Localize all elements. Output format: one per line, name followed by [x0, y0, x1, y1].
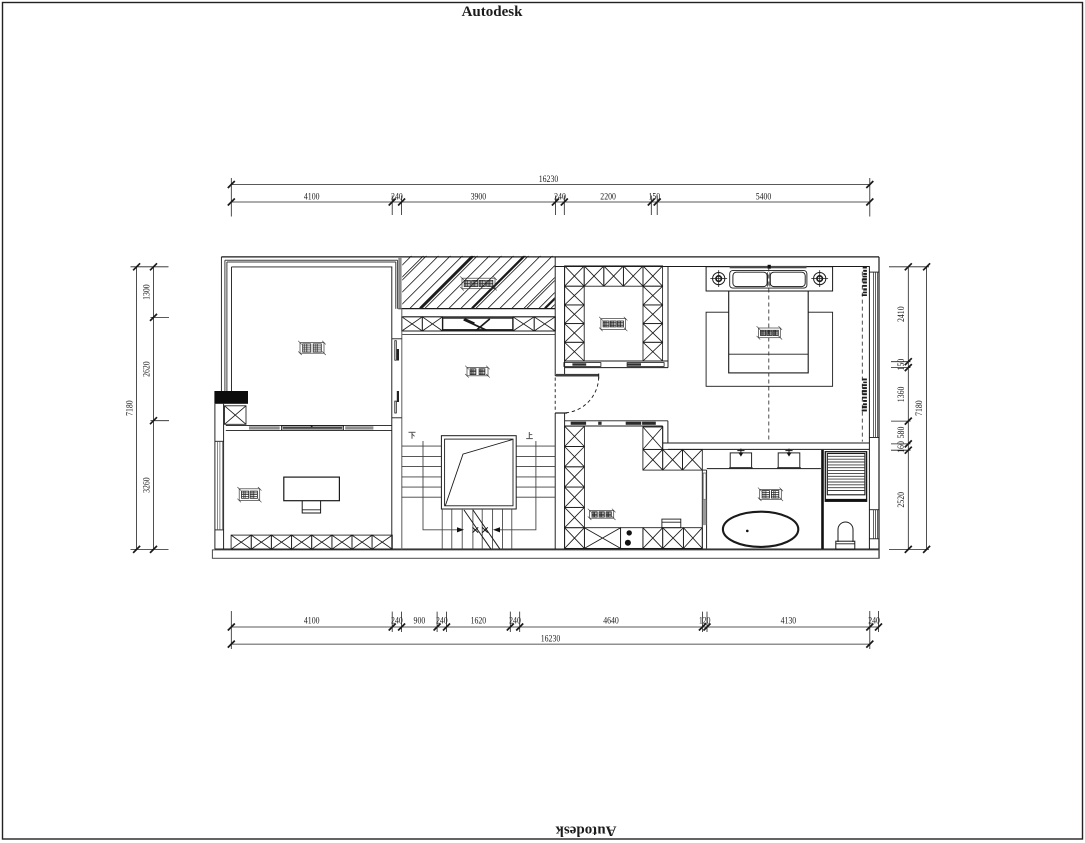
svg-text:2620: 2620 — [141, 361, 151, 377]
svg-text:160: 160 — [896, 441, 906, 453]
svg-text:580: 580 — [896, 426, 906, 438]
svg-text:240: 240 — [436, 616, 448, 626]
svg-text:4640: 4640 — [603, 616, 619, 626]
svg-text:4100: 4100 — [304, 191, 320, 201]
svg-text:150: 150 — [896, 358, 906, 370]
svg-text:900: 900 — [414, 616, 426, 626]
svg-text:2520: 2520 — [896, 492, 906, 508]
svg-text:2200: 2200 — [600, 191, 616, 201]
svg-text:150: 150 — [648, 191, 660, 201]
svg-text:3260: 3260 — [141, 477, 151, 493]
svg-text:240: 240 — [554, 191, 566, 201]
svg-text:16230: 16230 — [541, 633, 561, 643]
svg-text:1360: 1360 — [896, 386, 906, 402]
svg-text:1300: 1300 — [141, 284, 151, 300]
svg-text:1620: 1620 — [471, 616, 487, 626]
svg-text:Autodesk: Autodesk — [462, 4, 524, 20]
svg-text:2410: 2410 — [896, 306, 906, 322]
svg-text:240: 240 — [509, 616, 521, 626]
svg-text:16230: 16230 — [539, 174, 559, 184]
svg-text:4130: 4130 — [781, 616, 797, 626]
svg-text:Autodesk: Autodesk — [555, 823, 617, 839]
svg-text:7180: 7180 — [914, 400, 924, 416]
svg-text:5400: 5400 — [756, 191, 772, 201]
svg-text:240: 240 — [868, 616, 880, 626]
svg-text:7180: 7180 — [124, 400, 134, 416]
svg-text:240: 240 — [391, 191, 403, 201]
svg-text:3900: 3900 — [471, 191, 487, 201]
svg-text:120: 120 — [699, 616, 711, 626]
svg-text:4100: 4100 — [304, 616, 320, 626]
svg-text:240: 240 — [391, 616, 403, 626]
